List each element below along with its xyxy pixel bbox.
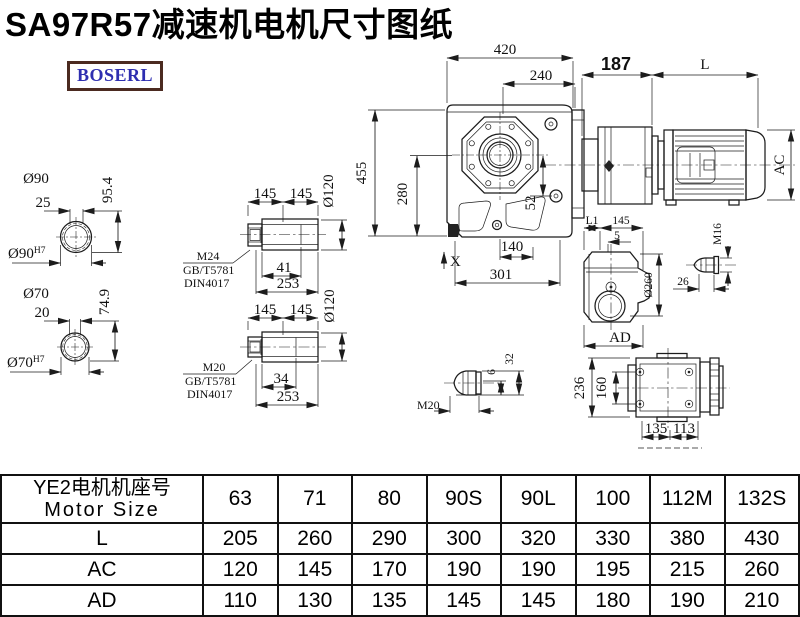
technical-drawing: 420 240 455 280 52 X 140 301 <box>0 0 800 474</box>
header-motor-size-en: Motor Size <box>2 499 202 521</box>
table-row-AD: AD 110 130 135 145 145 180 190 210 <box>1 585 799 616</box>
label-m16: M16 <box>712 223 724 245</box>
cell-AC-7: 260 <box>725 554 800 585</box>
dim-135: 135 <box>645 421 668 437</box>
dim-301: 301 <box>490 267 513 283</box>
cell-L-3: 300 <box>427 523 502 554</box>
dim-74-9: 74.9 <box>97 289 113 315</box>
dim-236: 236 <box>572 376 588 399</box>
dim-113: 113 <box>673 421 695 437</box>
label-std1-a: GB/T5781 <box>183 263 234 277</box>
dim-253-b: 253 <box>277 389 300 405</box>
dim-187: 187 <box>601 54 631 74</box>
dim-455: 455 <box>354 162 370 185</box>
label-m20-bolt: M20 <box>417 398 440 412</box>
dim-420: 420 <box>494 42 517 58</box>
cell-AC-1: 145 <box>278 554 353 585</box>
bushing-m20-view: 145 145 Ø120 M20 GB/T5781 DIN4017 34 253 <box>183 289 347 407</box>
cell-AC-6: 215 <box>650 554 725 585</box>
dim-AD: AD <box>609 330 631 346</box>
cell-L-2: 290 <box>352 523 427 554</box>
front-view <box>447 105 584 237</box>
label-fit-70: Ø70H7 <box>7 355 45 371</box>
cell-AC-5: 195 <box>576 554 651 585</box>
dim-6: 6 <box>486 369 498 375</box>
label-std2-b: DIN4017 <box>187 387 232 401</box>
dim-145b: 145 <box>290 186 313 202</box>
front-view-dimensions: 420 240 455 280 52 X 140 301 <box>354 42 575 286</box>
dim-25: 25 <box>36 195 51 211</box>
hollow-shaft-70: Ø70 20 74.9 Ø70H7 <box>7 286 119 375</box>
bolt-m20-view: 32 6 M20 <box>417 353 524 413</box>
page: { "title": "SA97R57减速机电机尺寸图纸", "logo": "… <box>0 0 800 613</box>
row-label-AD: AD <box>1 585 203 616</box>
dim-160: 160 <box>594 377 610 400</box>
bushing-m24-view: 145 145 Ø120 M24 GB/T5781 DIN4017 41 253 <box>183 174 347 294</box>
header-motor-size: YE2电机机座号 Motor Size <box>1 475 203 523</box>
dim-5: 5 <box>614 230 620 242</box>
label-fit-90: Ø90H7 <box>8 246 46 262</box>
cell-AD-2: 135 <box>352 585 427 616</box>
col-header-80: 80 <box>352 475 427 523</box>
dim-20: 20 <box>35 305 50 321</box>
cell-L-0: 205 <box>203 523 278 554</box>
label-std2-a: DIN4017 <box>184 276 229 290</box>
label-dia-90: Ø90 <box>23 171 49 187</box>
dim-26: 26 <box>677 276 689 288</box>
label-dia-70: Ø70 <box>23 286 49 302</box>
dim-145a: 145 <box>254 186 277 202</box>
dim-253-a: 253 <box>277 276 300 292</box>
dim-dia120-a: Ø120 <box>321 174 337 207</box>
cell-AC-4: 190 <box>501 554 576 585</box>
cell-L-1: 260 <box>278 523 353 554</box>
col-header-63: 63 <box>203 475 278 523</box>
cell-AC-3: 190 <box>427 554 502 585</box>
col-header-90s: 90S <box>427 475 502 523</box>
dim-dia120-b: Ø120 <box>322 289 338 322</box>
cell-AD-0: 110 <box>203 585 278 616</box>
dim-280: 280 <box>395 183 411 206</box>
dim-140: 140 <box>501 239 524 255</box>
hollow-shaft-90: Ø90 25 95.4 Ø90H7 <box>8 171 122 266</box>
cell-AD-4: 145 <box>501 585 576 616</box>
rear-view: 236 160 135 113 <box>572 348 730 448</box>
cell-L-5: 330 <box>576 523 651 554</box>
dim-145-side: 145 <box>612 215 630 227</box>
dim-L1: L1 <box>586 215 599 227</box>
dim-dia260: Ø260 <box>643 272 655 298</box>
col-header-71: 71 <box>278 475 353 523</box>
side-view: L1 145 5 Ø260 AD <box>584 215 663 348</box>
cell-AC-0: 120 <box>203 554 278 585</box>
row-label-L: L <box>1 523 203 554</box>
drain-plug <box>448 224 460 237</box>
label-std1-b: GB/T5781 <box>185 374 236 388</box>
dim-41: 41 <box>277 260 292 276</box>
col-header-132s: 132S <box>725 475 800 523</box>
label-m20: M20 <box>203 360 226 374</box>
dim-145d: 145 <box>290 302 313 318</box>
mark-x: X <box>450 254 461 270</box>
dim-95-4: 95.4 <box>100 176 116 203</box>
dim-L: L <box>700 57 709 73</box>
cell-AD-7: 210 <box>725 585 800 616</box>
table-row-AC: AC 120 145 170 190 190 195 215 260 <box>1 554 799 585</box>
bolt-m16-view: M16 26 <box>673 223 736 292</box>
table-header-row: YE2电机机座号 Motor Size 63 71 80 90S 90L 100… <box>1 475 799 523</box>
col-header-100: 100 <box>576 475 651 523</box>
dim-34: 34 <box>274 371 290 387</box>
cell-AD-6: 190 <box>650 585 725 616</box>
cell-L-6: 380 <box>650 523 725 554</box>
dim-32: 32 <box>504 353 516 365</box>
cell-L-7: 430 <box>725 523 800 554</box>
dim-AC: AC <box>772 155 788 176</box>
cell-AD-1: 130 <box>278 585 353 616</box>
row-label-AC: AC <box>1 554 203 585</box>
table-row-L: L 205 260 290 300 320 330 380 430 <box>1 523 799 554</box>
cell-AD-5: 180 <box>576 585 651 616</box>
col-header-112m: 112M <box>650 475 725 523</box>
label-m24: M24 <box>197 249 220 263</box>
dim-240: 240 <box>530 68 553 84</box>
motor-size-table: YE2电机机座号 Motor Size 63 71 80 90S 90L 100… <box>0 474 800 617</box>
cell-L-4: 320 <box>501 523 576 554</box>
cell-AD-3: 145 <box>427 585 502 616</box>
cell-AC-2: 170 <box>352 554 427 585</box>
dim-52: 52 <box>523 196 539 211</box>
motor-assembly-view: 187 L AC <box>545 54 795 205</box>
header-motor-size-cn: YE2电机机座号 <box>2 477 202 499</box>
col-header-90l: 90L <box>501 475 576 523</box>
key-marker <box>604 160 614 172</box>
dim-145c: 145 <box>254 302 277 318</box>
